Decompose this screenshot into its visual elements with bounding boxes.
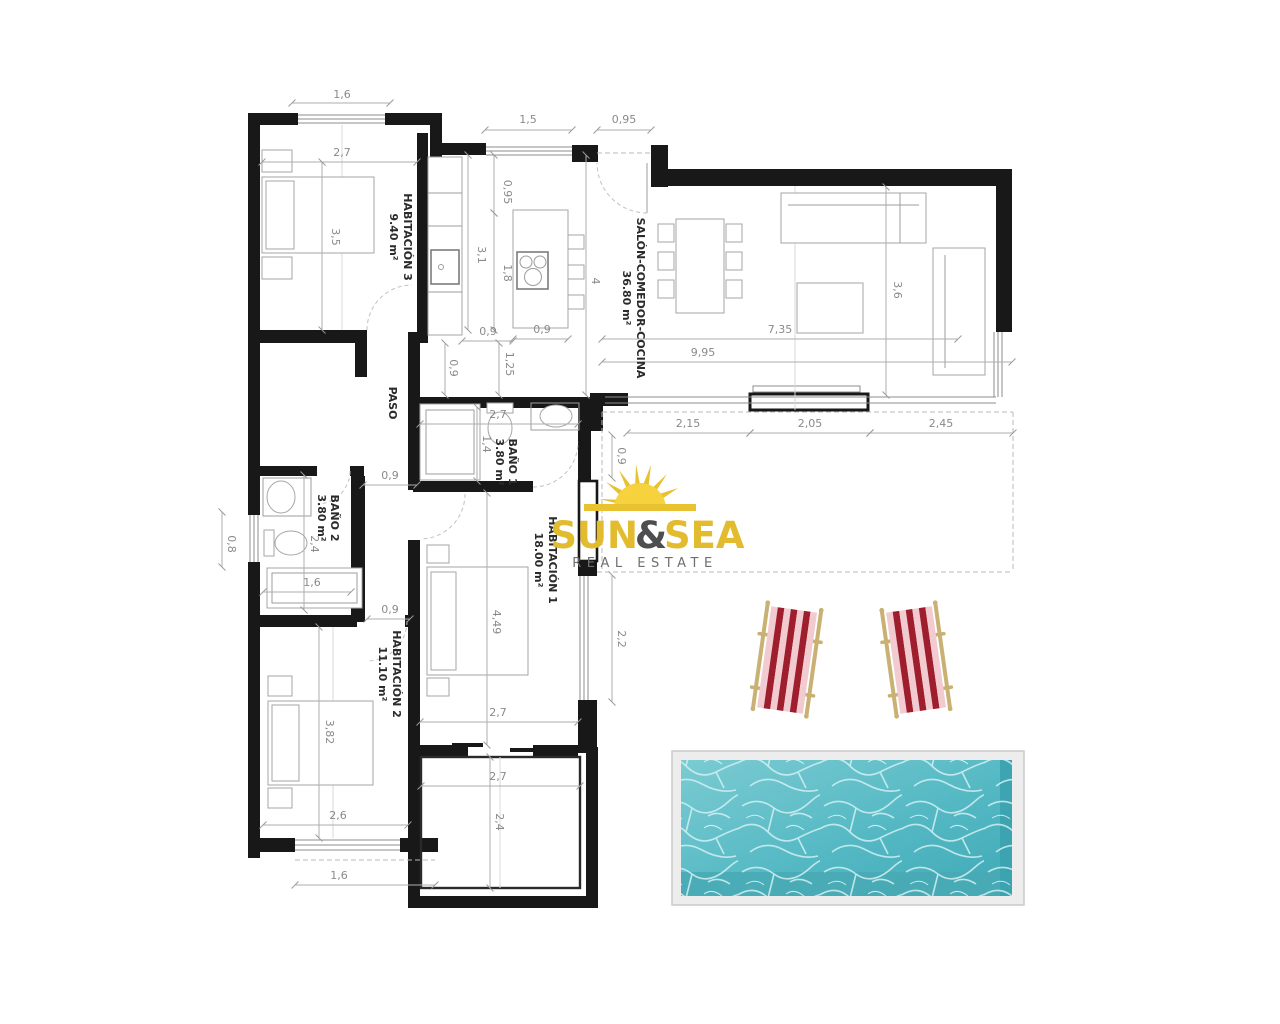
room-label-habitacion-2: HABITACIÓN 2	[390, 630, 403, 718]
dimension-label: 3,82	[323, 720, 336, 745]
dimension-label: 1,6	[303, 576, 321, 589]
dimension-label: 2,4	[493, 813, 506, 831]
window-hab1-right	[580, 576, 588, 700]
room-label-salon: SALÓN-COMEDOR-COCINA	[634, 218, 647, 379]
logo-tagline: REAL ESTATE	[572, 556, 717, 571]
dimension-label: 0,9	[381, 603, 399, 616]
dimension-label: 2,6	[329, 809, 347, 822]
dimension-label: 1,8	[501, 264, 514, 282]
window-salon-right	[994, 332, 1002, 397]
dimension-label: 0,9	[479, 325, 497, 338]
dimension-label: 1,6	[330, 869, 348, 882]
room-label-bano-2: BAÑO 2	[328, 495, 341, 542]
dining-table	[658, 219, 742, 313]
window-bano2-left	[250, 515, 258, 562]
swimming-pool	[672, 751, 1024, 905]
bed-hab1	[427, 545, 528, 696]
room-area-habitacion-2: 11.10 m²	[376, 647, 389, 702]
room-area-habitacion-1: 18.00 m²	[532, 533, 545, 588]
dimension-label: 0,9	[533, 323, 551, 336]
hab1-door-arc	[421, 494, 465, 539]
room-label-habitacion-3: HABITACIÓN 3	[401, 193, 414, 281]
oven-icon	[431, 250, 459, 284]
dimension-label: 7,35	[768, 323, 793, 336]
dimension-label: 2,2	[615, 630, 628, 648]
dimension-label: 1,25	[503, 352, 516, 377]
dimension-label: 4	[589, 278, 602, 285]
room-label-paso: PASO	[386, 387, 399, 420]
window-kitchen-top	[486, 147, 572, 155]
dimension-label: 2,7	[489, 408, 507, 421]
dimension-label: 0,9	[447, 359, 460, 377]
dimension-label: 3,1	[475, 246, 488, 264]
logo-word-sun: SUN	[550, 514, 638, 557]
floor-plan-drawing: 1,6 2,7 1,5 0,95 0,9 0,9 7,35 9,95 2,15 …	[0, 0, 1280, 1024]
entry-door-arc	[597, 163, 647, 213]
dimension-label: 2,7	[489, 706, 507, 719]
dimension-label: 9,95	[691, 346, 716, 359]
floor-plan-page: 1,6 2,7 1,5 0,95 0,9 0,9 7,35 9,95 2,15 …	[0, 0, 1280, 1024]
sofa-vertical	[933, 248, 985, 375]
kitchen-cabinets	[428, 157, 462, 335]
sun-logo-icon	[598, 464, 682, 509]
toilet-icon	[264, 530, 274, 556]
room-area-bano-1: 3.80 m²	[493, 438, 506, 485]
window-hab2-bottom	[295, 840, 400, 850]
bed-hab2	[268, 676, 373, 808]
dimension-label: 0,9	[381, 469, 399, 482]
kitchen-island	[513, 210, 584, 328]
sofa-horizontal	[781, 193, 926, 243]
bano1-door-arc	[533, 442, 578, 487]
logo-word-sea: SEA	[664, 514, 745, 557]
deck-chair-right	[875, 600, 956, 720]
dimension-label: 2,7	[333, 146, 351, 159]
room-area-salon: 36.80 m²	[620, 271, 633, 326]
window-sill-detail	[753, 386, 860, 392]
room-area-bano-2: 3.80 m²	[315, 494, 328, 541]
dimension-label: 0,95	[501, 180, 514, 205]
dimension-label: 0,9	[615, 447, 628, 465]
window-hab3-top	[298, 115, 385, 123]
sink-icon	[267, 481, 295, 513]
coffee-table	[797, 283, 863, 333]
room-label-bano-1: BAÑO 1	[506, 439, 519, 486]
dimension-label: 0,8	[225, 535, 238, 553]
hab3-door-arc	[367, 285, 412, 330]
dimension-label: 1,4	[480, 435, 493, 453]
dimension-label: 2,05	[798, 417, 823, 430]
salon-window-frame	[750, 394, 868, 410]
bed-hab3	[262, 150, 374, 279]
logo-ampersand: &	[635, 514, 667, 557]
sun-horizon-bar	[584, 504, 696, 511]
dimension-label: 3,5	[329, 228, 342, 246]
dimension-label: 0,95	[612, 113, 637, 126]
dimension-label: 4,49	[490, 610, 503, 635]
dimension-label: 1,5	[519, 113, 537, 126]
room-area-habitacion-3: 9.40 m²	[387, 213, 400, 260]
dimension-label: 2,15	[676, 417, 701, 430]
deck-chair-left	[747, 600, 828, 720]
dimension-label: 2,7	[489, 770, 507, 783]
dimension-label: 1,6	[333, 88, 351, 101]
dimension-label: 3,6	[891, 281, 904, 299]
dimension-label: 2,45	[929, 417, 954, 430]
